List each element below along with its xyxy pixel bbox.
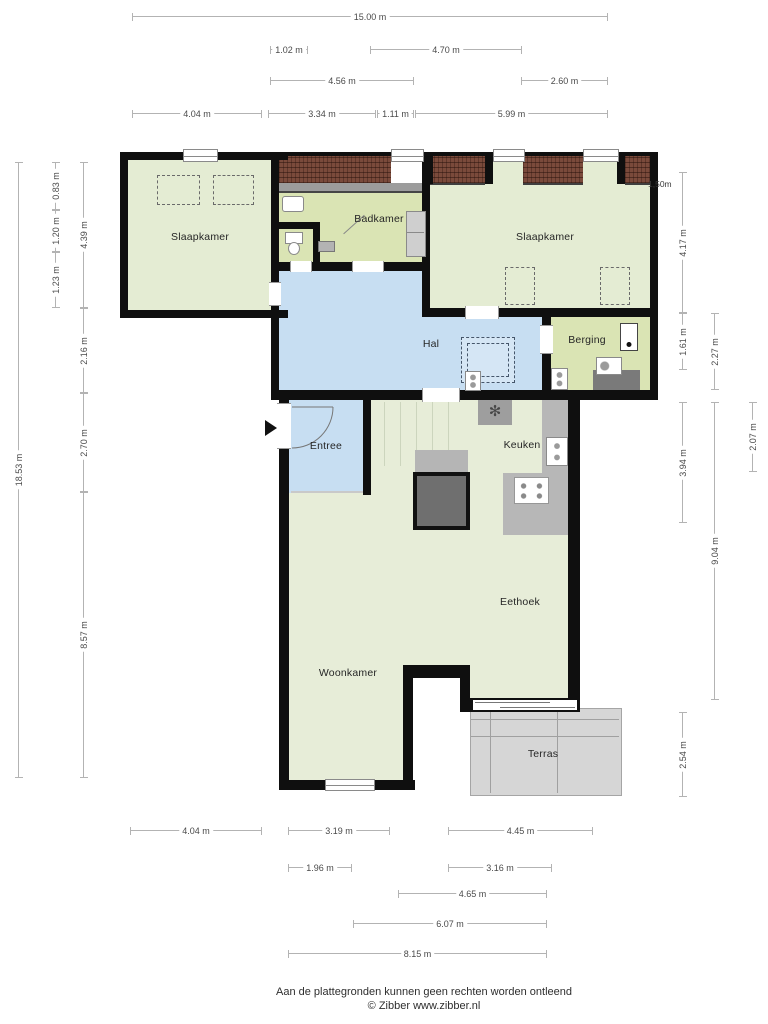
roof-tiles [625,155,650,185]
disclaimer-text: Aan de plattegronden kunnen geen rechten… [276,986,572,998]
wall [403,665,413,790]
room-label-slaapkamer-left: Slaapkamer [171,231,229,243]
roof-window-outline [505,267,535,305]
dim-bottom-0: 4.04 m [130,830,262,831]
dim-right-3: 2.27 m [714,313,715,390]
wall [120,310,288,318]
boiler-icon [620,323,638,351]
stair-opening [413,472,470,530]
dim-top-8: 5.99 m [415,113,608,114]
door-opening [269,282,281,306]
dim-left-4: 4.39 m [83,162,84,308]
room-hal-floor [279,271,422,390]
room-label-badkamer: Badkamer [354,213,403,225]
roof-tiles [279,155,391,185]
dim-top-3: 4.56 m [270,80,414,81]
shower-divider [407,232,424,233]
dim-bottom-4: 3.16 m [448,867,552,868]
wall [279,390,289,790]
door-opening [465,306,499,319]
dim-left-7: 8.57 m [83,492,84,778]
dim-top-6: 3.34 m [268,113,376,114]
floor-plan: ✻ [0,0,768,1024]
terras-line [471,719,619,720]
roof-window-outline [157,175,200,205]
window [183,149,218,162]
dim-bottom-6: 6.07 m [353,923,547,924]
stair-landing [415,450,468,472]
window [583,149,619,162]
ventilation-fan-icon: ✻ [478,398,512,425]
ventilation-unit-icon [551,368,568,390]
window [391,149,424,162]
wall [422,308,658,317]
dim-top-5: 4.04 m [132,113,262,114]
terras-line [471,736,619,737]
wall [650,308,658,400]
dim-right-2: 3.94 m [682,402,683,523]
dim-top-2: 4.70 m [370,49,522,50]
dim-top-0: 15.00 m [132,16,608,17]
room-label-keuken: Keuken [504,439,541,451]
door-opening [422,388,460,402]
room-label-woonkamer: Woonkamer [319,667,377,679]
wall [650,152,658,317]
wall [271,152,279,400]
dim-left-3: 1.23 m [55,252,56,308]
dim-right-5: 2.07 m [752,402,753,472]
washing-machine-icon [596,357,622,375]
radiator-icon [318,241,335,252]
room-label-terras: Terras [528,748,558,760]
door-opening [352,261,384,272]
roof-tiles [430,155,485,185]
dim-right-4: 9.04 m [714,402,715,700]
toilet-bowl-icon [288,242,300,255]
room-label-slaapkamer-right: Slaapkamer [516,231,574,243]
bathroom-sink-icon [282,196,304,212]
front-door-opening [277,403,291,449]
dim-left-6: 2.70 m [83,393,84,492]
shower-icon [406,211,426,257]
entry-arrow-icon [265,420,277,436]
dim-top-4: 2.60 m [521,80,608,81]
wall [485,152,493,184]
roof-tiles [523,155,583,185]
dim-top-1: 1.02 m [270,49,308,50]
cutout [413,678,460,712]
room-woonkamer-floor [289,700,413,780]
wall [120,152,128,318]
knee-wall-height-label: 1,50m [648,179,672,189]
room-label-berging: Berging [568,334,606,346]
copyright-text: © Zibber www.zibber.nl [368,1000,481,1012]
dim-right-1: 1.61 m [682,313,683,370]
dim-bottom-1: 3.19 m [288,830,390,831]
dim-left-1: 0.83 m [55,162,56,210]
kitchen-sink-icon [546,437,568,466]
dim-left-5: 2.16 m [83,308,84,393]
dim-right-0: 4.17 m [682,172,683,313]
door-opening [540,325,553,354]
dim-bottom-3: 1.96 m [288,867,352,868]
roof-window-outline [600,267,630,305]
stove-icon [514,477,549,504]
terras-line [490,709,491,793]
dim-right-6: 2.54 m [682,712,683,797]
wall [568,390,580,712]
threshold [291,491,363,493]
roof-gutter [279,183,425,193]
dim-bottom-5: 4.65 m [398,893,547,894]
sliding-door [473,700,577,710]
dim-top-7: 1.11 m [377,113,414,114]
window [493,149,525,162]
room-label-eethoek: Eethoek [500,596,540,608]
door-opening [290,261,312,272]
ventilation-unit-icon [465,371,481,391]
room-label-hal: Hal [423,338,439,350]
wall [363,395,371,495]
dim-left-0: 18.53 m [18,162,19,778]
room-label-entree: Entree [310,440,342,452]
roof-window-outline [213,175,254,205]
dim-left-2: 1.20 m [55,210,56,252]
dim-bottom-7: 8.15 m [288,953,547,954]
dim-bottom-2: 4.45 m [448,830,593,831]
window [325,779,375,791]
